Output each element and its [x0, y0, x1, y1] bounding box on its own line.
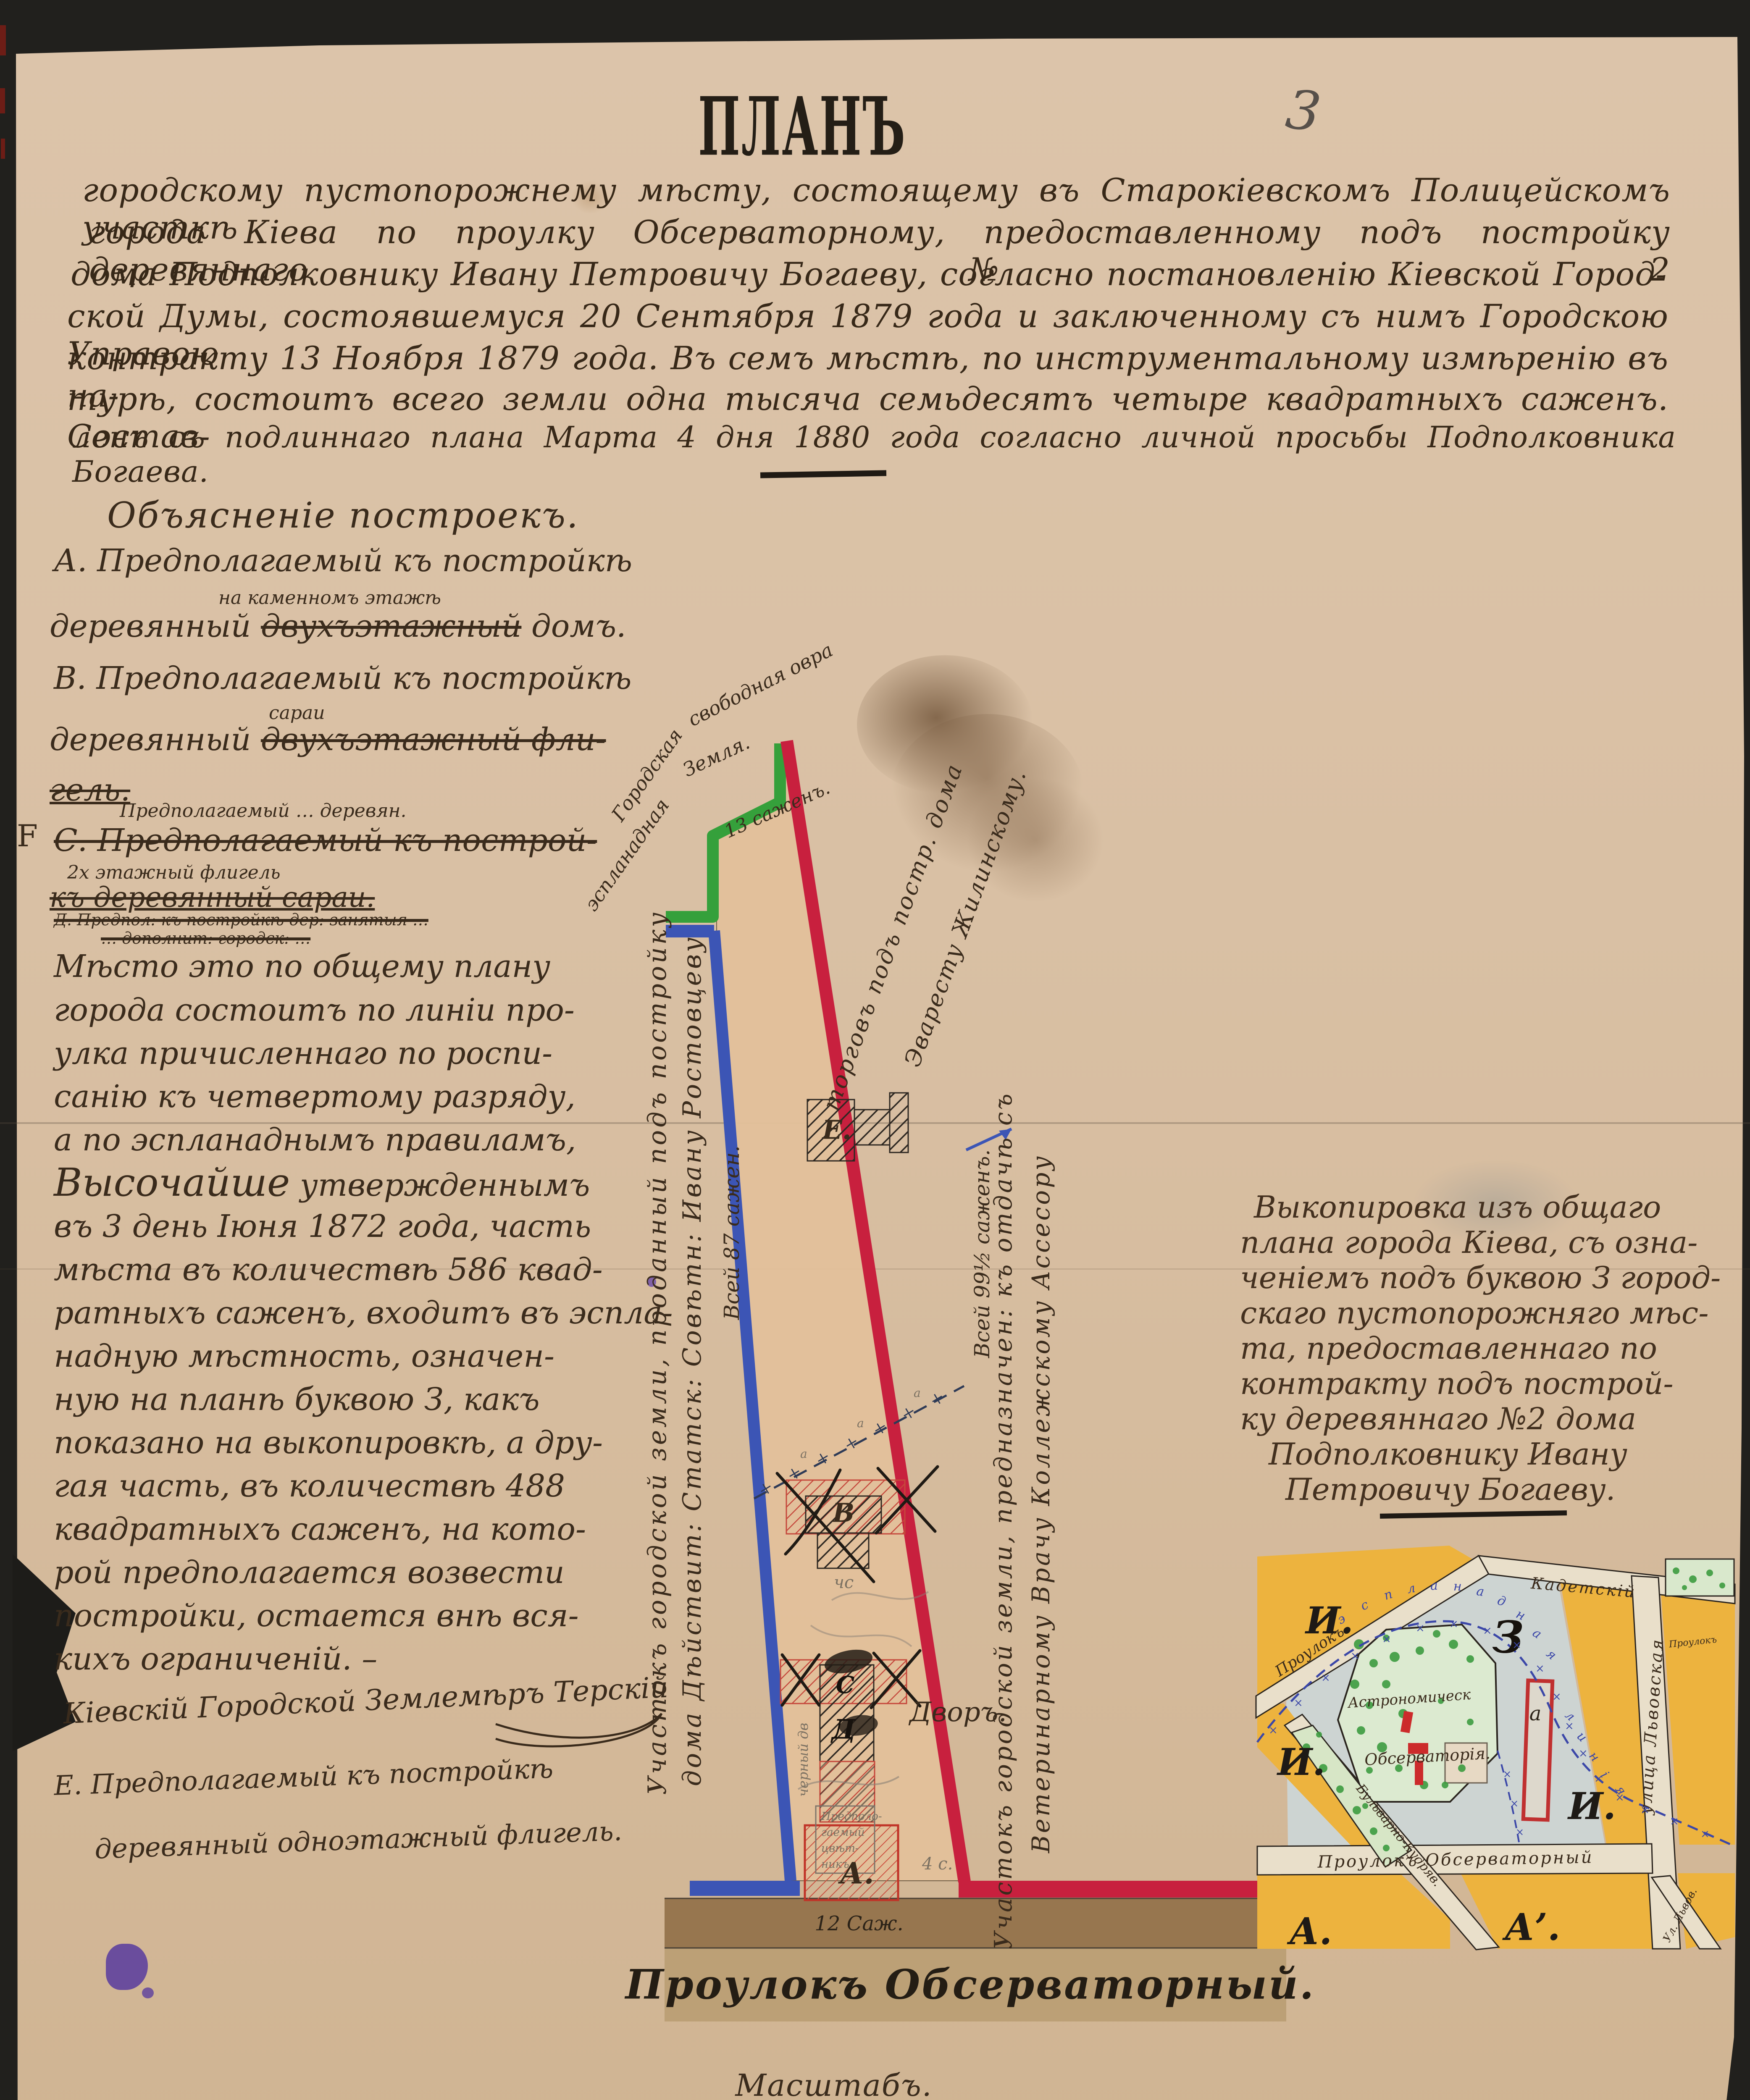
street-name-label: Проулокъ Обсерваторный. — [625, 1961, 1315, 2008]
page-title: ПЛАНЪ — [698, 80, 907, 174]
left-m-line: а по эспланаднымъ правиламъ, — [54, 1122, 576, 1158]
left-m-line: мѣста въ количествѣ 586 квад- — [54, 1252, 603, 1288]
right-block-line: та, предоставленнаго по — [1240, 1331, 1657, 1366]
street-band-dark — [665, 1898, 1286, 1948]
pencil-flower-4: никъ — [821, 1858, 849, 1871]
left-m-line: ратныхъ саженъ, входитъ въ эспла- — [54, 1295, 673, 1331]
building-letter-D: Д — [832, 1714, 856, 1746]
right-block-line: Выкопировка изъ общаго — [1254, 1189, 1661, 1225]
left-margin-f: F — [17, 818, 38, 853]
esp-letter: а — [1430, 1578, 1438, 1593]
left-m-line: квадратныхъ саженъ, на кото- — [54, 1511, 586, 1547]
inset-x-mark: × — [1351, 1650, 1360, 1662]
text: деревянный — [50, 608, 261, 644]
left-m-line: Мѣсто это по общему плану — [54, 948, 550, 984]
right-block-line: контракту подъ построй- — [1240, 1366, 1674, 1401]
text: утвержденнымъ — [290, 1167, 590, 1203]
text: деревянный — [50, 722, 261, 758]
left-entry-c1: С. Предполагаемый къ построй- — [54, 822, 597, 858]
inset-x-mark: × — [1512, 1639, 1521, 1651]
pencil-4s: 4 с. — [922, 1854, 953, 1874]
left-entry-b: В. Предполагаемый къ постройкѣ — [54, 660, 632, 696]
left-entry-c-insert1: Предполагаемый … деревян. — [120, 800, 407, 822]
label-right-parcel-2: Ветеринарному Врачу Коллежскому Ассесору — [1027, 1154, 1055, 1853]
signature-flourish — [496, 1714, 662, 1746]
esplanade-a-mark: а — [857, 1416, 864, 1430]
inset-district-a: А. — [1289, 1909, 1332, 1953]
label-left-parcel-1: Участокъ городской земли, проданный подъ… — [643, 910, 672, 1795]
left-m-line: кихъ ограниченій. – — [54, 1641, 377, 1677]
inset-x-mark: × — [1269, 1724, 1278, 1737]
left-entry-b3: гель. — [50, 772, 130, 808]
left-entry-a2: деревянный двухъэтажный домъ. — [50, 608, 626, 644]
inset-x-mark: × — [1565, 1720, 1574, 1732]
inset-x-mark: × — [1700, 1828, 1710, 1840]
pencil-flower-3: цвѣт- — [821, 1842, 859, 1855]
right-block-line: ченіемъ подъ буквою З город- — [1240, 1260, 1721, 1295]
inset-site-parcel — [1523, 1680, 1552, 1820]
left-m-vysochaishe: Высочайше утвержденнымъ — [54, 1160, 590, 1205]
inset-x-mark: × — [1510, 1798, 1519, 1809]
esplanade-a-mark: а — [914, 1386, 921, 1400]
inset-district-i3: И. — [1568, 1784, 1616, 1828]
right-block-line: Петровичу Богаеву. — [1285, 1472, 1616, 1507]
left-m-line: показано на выкопировкѣ, а дру- — [54, 1425, 603, 1461]
inset-x-mark: × — [1382, 1633, 1391, 1646]
esplanade-a-mark: а — [800, 1447, 807, 1461]
left-heading: Объясненіе построекъ. — [107, 495, 579, 536]
inset-x-mark: × — [1535, 1662, 1545, 1675]
blue-boundary-foot — [690, 1881, 800, 1896]
pencil-chs: чс — [834, 1573, 854, 1592]
header-line: ленъ съ подлиннаго плана Марта 4 дня 188… — [72, 420, 1676, 489]
left-entry-c-insert2: 2х этажный флигель — [67, 862, 281, 883]
inset-x-mark: × — [1321, 1672, 1330, 1684]
left-entry-b2: деревянный двухъэтажный фли- — [50, 722, 606, 758]
left-m-line: постройки, остается внѣ вся- — [54, 1598, 579, 1634]
inset-x-mark: × — [1640, 1804, 1650, 1816]
inset-x-mark: × — [1552, 1690, 1561, 1703]
struck-text: двухъэтажный — [261, 608, 521, 644]
left-entry-d2: … дополнит: городск: … — [101, 929, 310, 948]
pencil-flower-2: гаемый — [821, 1826, 865, 1839]
inset-x-mark: × — [1615, 1791, 1624, 1804]
main-plan — [665, 741, 1286, 2021]
left-m-line: надную мѣстность, означен- — [54, 1338, 554, 1374]
building-letter-B: В — [833, 1498, 854, 1528]
struck-text: двухъэтажный фли- — [261, 722, 606, 758]
pencil-flower-1: Предполо- — [821, 1810, 882, 1823]
label-left-parcel-2: дома Дѣйствит: Статск: Совѣтн: Ивану Рос… — [678, 935, 707, 1786]
right-block-line: Подполковнику Ивану — [1269, 1436, 1627, 1472]
inset-x-mark: × — [1579, 1747, 1588, 1760]
left-m-line: города состоитъ по линіи про- — [54, 992, 575, 1028]
left-m-line: улка причисленнаго по роспи- — [54, 1035, 552, 1071]
inset-observatory-park — [1338, 1625, 1498, 1802]
left-entry-a-insert: на каменномъ этажѣ — [218, 587, 441, 609]
left-m-line: гая часть, въ количествѣ 488 — [54, 1468, 565, 1504]
inset-x-mark: × — [1670, 1815, 1679, 1828]
left-entry-c2: къ деревянный сараи. — [50, 881, 375, 913]
right-block-line: скаго пустопорожняго мѣс- — [1240, 1295, 1709, 1331]
street-width-label: 12 Саж. — [815, 1912, 904, 1935]
left-m-line: рой предполагается возвести — [54, 1554, 565, 1591]
text: домъ. — [521, 608, 626, 644]
inset-x-mark: × — [1294, 1697, 1303, 1709]
inset-x-mark: × — [1483, 1625, 1492, 1637]
header-line: дома Подполковнику Ивану Петровичу Богае… — [71, 255, 1667, 293]
left-entry-a: А. Предполагаемый къ постройкѣ — [54, 543, 632, 579]
inset-x-mark: × — [1516, 1826, 1524, 1838]
left-m-line: ную на планѣ буквою З, какъ — [54, 1381, 540, 1417]
inset-x-mark: × — [1416, 1622, 1425, 1635]
label-left-area: Всей 87 сажен. — [720, 1145, 744, 1320]
document-page: ПЛАНЪ 3 городскому пустопорожнему мѣсту,… — [0, 0, 1750, 2100]
inset-district-a2: А’. — [1505, 1905, 1561, 1949]
esp-letter: н — [1453, 1579, 1462, 1594]
right-block-line: плана города Кіева, съ озна- — [1240, 1225, 1697, 1260]
left-m-line: санію къ четвертому разряду, — [54, 1079, 575, 1115]
inset-x-mark: × — [1594, 1772, 1603, 1785]
building-letter-C: С — [836, 1671, 855, 1699]
left-entry-d1: Д. Предпол: къ постройкѣ дер: занятыя … — [54, 911, 428, 929]
building-letter-E: Е. — [822, 1115, 851, 1145]
inset-x-mark: × — [1449, 1618, 1458, 1630]
right-block-line: ку деревяннаго №2 дома — [1240, 1401, 1636, 1436]
inset-district-i2: И. — [1277, 1740, 1325, 1784]
inset-x-mark: × — [1503, 1768, 1511, 1780]
emphasized-word: Высочайше — [54, 1160, 290, 1205]
pencil-black-yard: черный дв — [795, 1723, 811, 1797]
inset-letter-a-small: а — [1529, 1702, 1542, 1725]
label-dvor: Дворъ. — [909, 1697, 1007, 1728]
left-m-line: въ 3 день Іюня 1872 года, часть — [54, 1208, 591, 1244]
scale-title: Масштабъ. — [735, 2068, 932, 2100]
label-right-area: Всей 99½ саженъ. — [970, 1150, 994, 1358]
left-entry-b-insert: сараи — [269, 702, 325, 724]
